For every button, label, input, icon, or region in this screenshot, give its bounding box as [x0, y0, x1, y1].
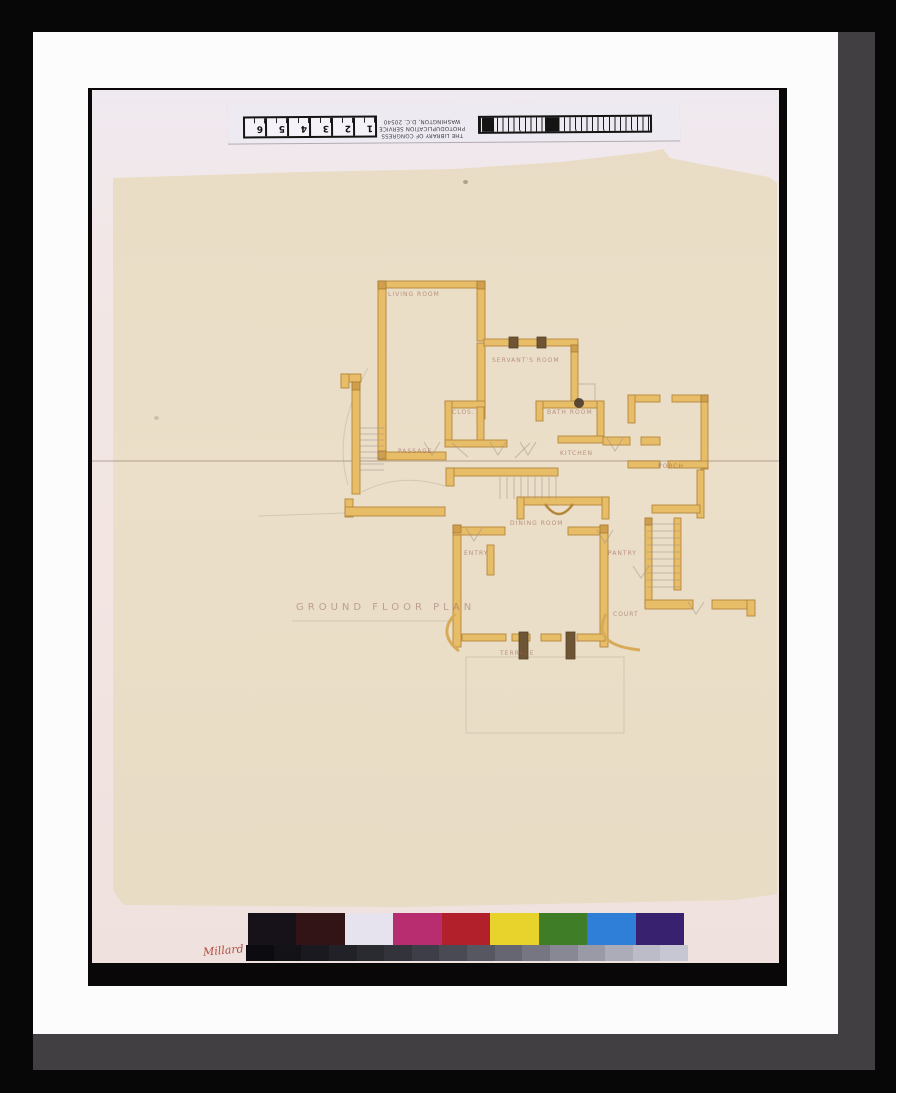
gray-step: [412, 945, 440, 961]
color-patch: [539, 913, 587, 946]
color-patch: [442, 913, 490, 946]
color-calibration-bar: [248, 913, 684, 946]
room-label-servants-room: SERVANT'S ROOM: [492, 357, 560, 364]
color-patch: [345, 913, 393, 946]
framed-floor-plan-photograph: { "ruler": { "line1": "THE LIBRARY OF CO…: [0, 0, 912, 1108]
gray-step: [439, 945, 467, 961]
color-patch: [636, 913, 684, 946]
gray-step: [384, 945, 412, 961]
room-label-closet: CLOS.: [452, 409, 475, 416]
room-label-kitchen: KITCHEN: [560, 450, 593, 457]
room-label-pantry: PANTRY: [608, 550, 637, 557]
gray-step: [467, 945, 495, 961]
gray-step: [274, 945, 302, 961]
plan-title: GROUND FLOOR PLAN: [296, 602, 475, 613]
room-label-terrace: TERRACE: [500, 650, 535, 657]
room-label-porch: PORCH: [658, 463, 684, 470]
color-patch: [248, 913, 296, 946]
gray-step: [578, 945, 606, 961]
color-patch: [587, 913, 635, 946]
gray-step: [605, 945, 633, 961]
gray-step: [550, 945, 578, 961]
gray-step: [246, 945, 274, 961]
room-label-dining-room: DINING ROOM: [510, 520, 563, 527]
room-label-living-room: LIVING ROOM: [388, 291, 440, 298]
gray-step: [357, 945, 385, 961]
room-label-passage: PASSAGE: [398, 448, 433, 455]
gray-step: [495, 945, 523, 961]
color-patch: [490, 913, 538, 946]
room-label-bath-room: BATH ROOM: [547, 409, 593, 416]
gray-step: [633, 945, 661, 961]
gray-step: [301, 945, 329, 961]
gray-step: [522, 945, 550, 961]
gray-step: [660, 945, 688, 961]
color-patch: [393, 913, 441, 946]
color-patch: [296, 913, 344, 946]
gray-step: [329, 945, 357, 961]
room-label-entry: ENTRY: [464, 550, 488, 557]
room-label-court: COURT: [613, 611, 639, 618]
grayscale-calibration-bar: [246, 945, 688, 961]
